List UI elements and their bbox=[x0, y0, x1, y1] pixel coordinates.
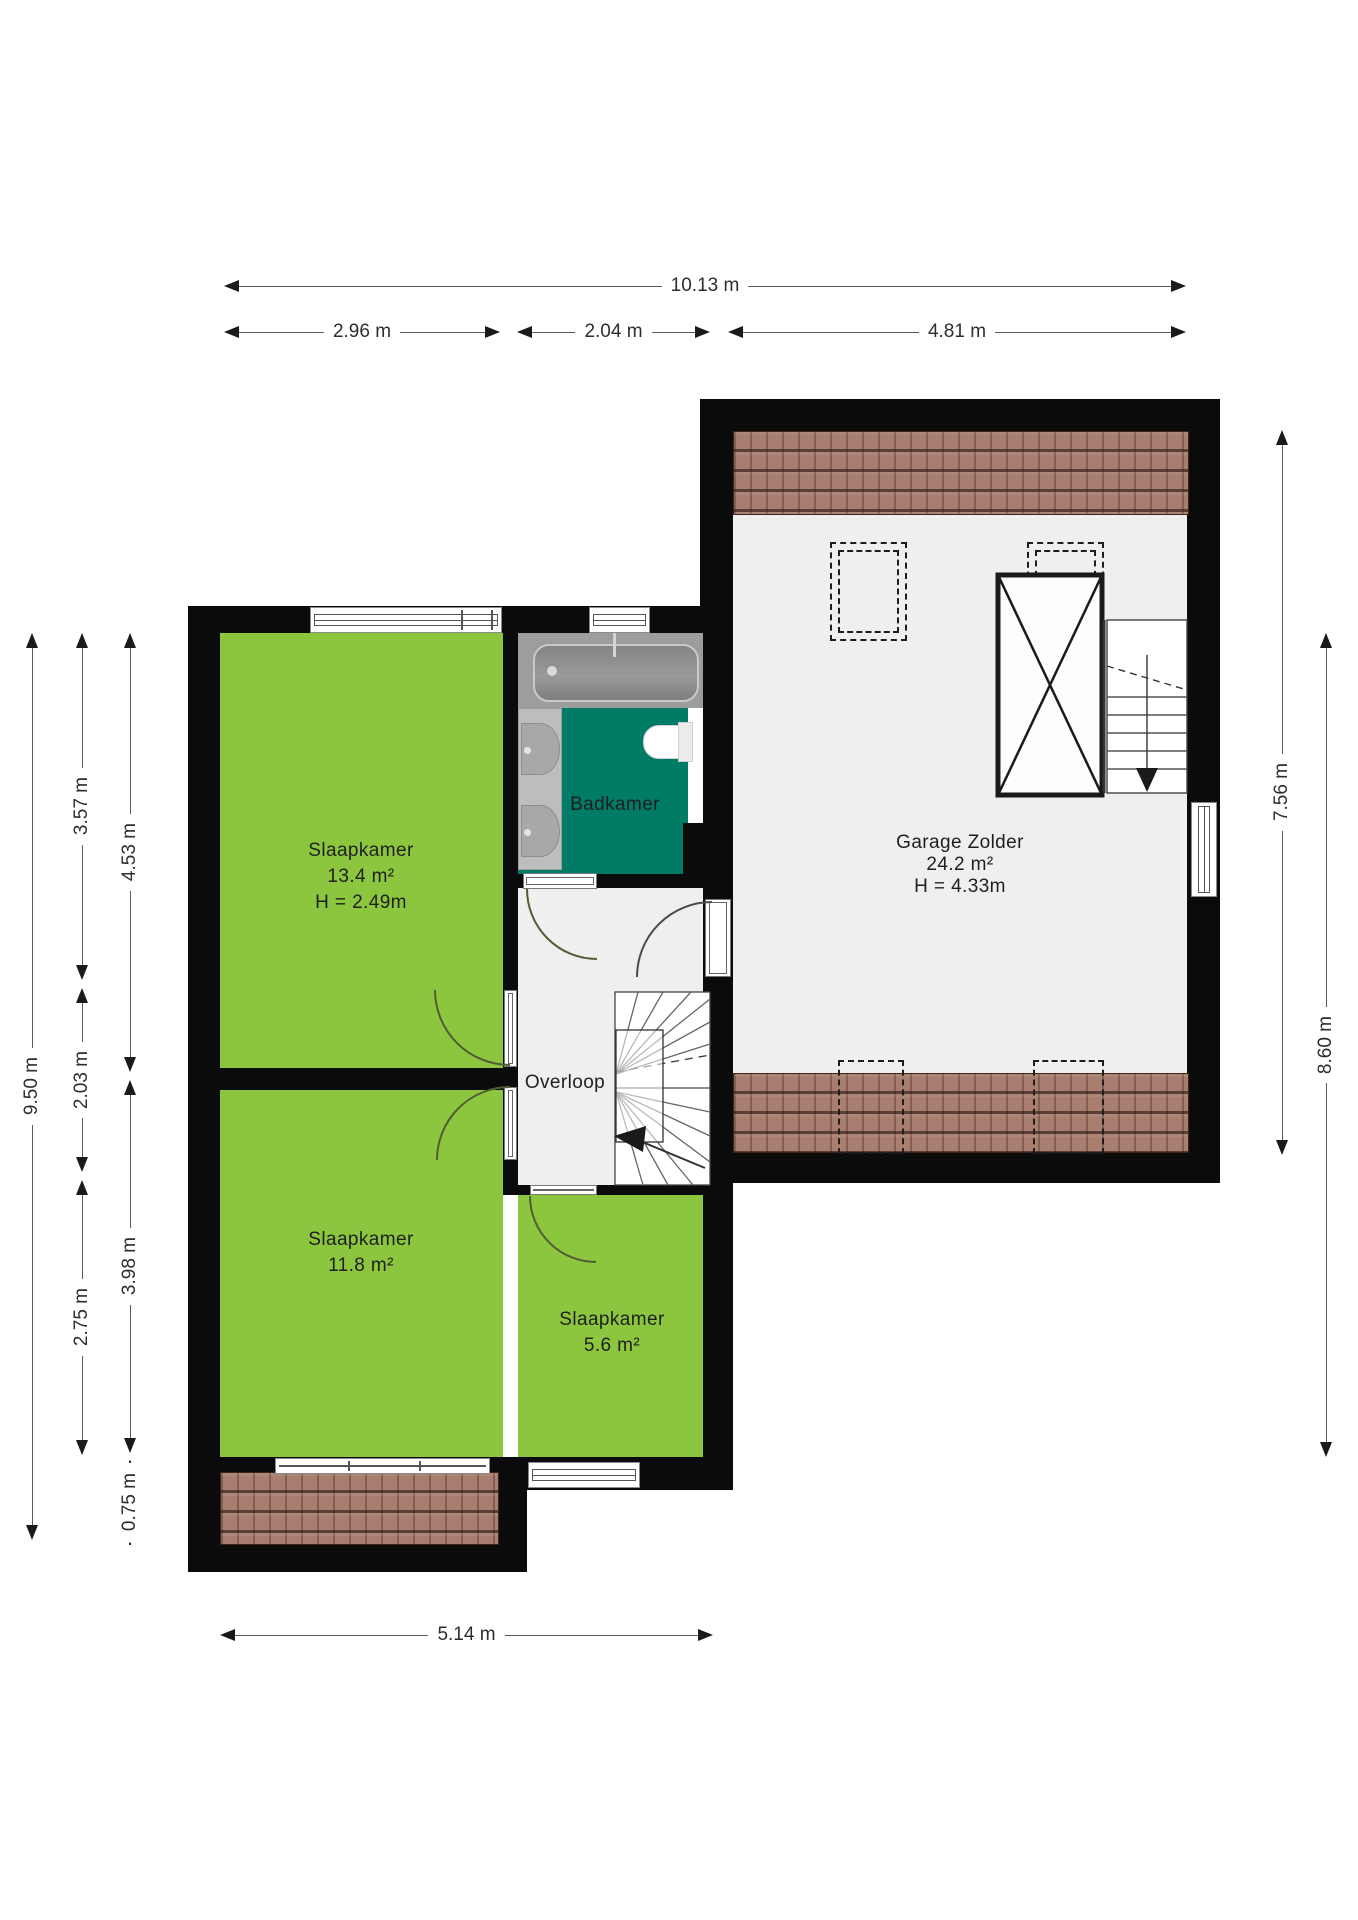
dim-label: 8.60 m bbox=[1315, 1016, 1337, 1074]
label-slaapkamer-2: Slaapkamer 11.8 m² bbox=[308, 1227, 413, 1279]
label-slaapkamer-3: Slaapkamer 5.6 m² bbox=[559, 1307, 664, 1359]
label-badkamer: Badkamer bbox=[570, 792, 660, 818]
arrow-up-icon bbox=[124, 1080, 136, 1095]
dim-top-seg-2: 2.04 m bbox=[517, 322, 710, 342]
dim-left3-seg-2: 3.98 m bbox=[119, 1080, 141, 1453]
room-height: H = 2.49m bbox=[308, 890, 413, 916]
label-garage-zolder: Garage Zolder 24.2 m² H = 4.33m bbox=[896, 832, 1024, 898]
arrow-left-icon bbox=[517, 326, 532, 338]
dim-label: 5.14 m bbox=[437, 1624, 495, 1646]
room-area: 11.8 m² bbox=[308, 1253, 413, 1279]
arrow-down-icon bbox=[1276, 1140, 1288, 1155]
arrow-right-icon bbox=[485, 326, 500, 338]
label-slaapkamer-1: Slaapkamer 13.4 m² H = 2.49m bbox=[308, 838, 413, 916]
dim-label: 4.81 m bbox=[928, 321, 986, 343]
dim-right-total: 8.60 m bbox=[1315, 633, 1337, 1457]
arrow-left-icon bbox=[224, 280, 239, 292]
garage-void-box bbox=[998, 575, 1102, 795]
dim-dot: · bbox=[126, 1540, 133, 1546]
room-name: Slaapkamer bbox=[308, 1227, 413, 1253]
dim-left3-seg-3: · 0.75 m · bbox=[119, 1458, 141, 1538]
dim-label: 3.98 m bbox=[119, 1237, 141, 1295]
dim-left2-seg-3: 2.75 m bbox=[71, 1180, 93, 1455]
arrow-right-icon bbox=[1171, 280, 1186, 292]
arrow-up-icon bbox=[1276, 430, 1288, 445]
dim-bottom: 5.14 m bbox=[220, 1625, 713, 1645]
label-overloop: Overloop bbox=[525, 1070, 605, 1096]
arrow-down-icon bbox=[26, 1525, 38, 1540]
arrow-left-icon bbox=[220, 1629, 235, 1641]
dim-right-garage: 7.56 m bbox=[1271, 430, 1293, 1155]
dim-left-total: 9.50 m bbox=[21, 633, 43, 1540]
dim-label: 3.57 m bbox=[71, 777, 93, 835]
room-name: Slaapkamer bbox=[559, 1307, 664, 1333]
arrow-up-icon bbox=[76, 1180, 88, 1195]
arrow-up-icon bbox=[1320, 633, 1332, 648]
room-height: H = 4.33m bbox=[896, 876, 1024, 898]
arrow-right-icon bbox=[695, 326, 710, 338]
dim-label: 7.56 m bbox=[1271, 763, 1293, 821]
arrow-down-icon bbox=[1320, 1442, 1332, 1457]
arrow-up-icon bbox=[124, 633, 136, 648]
dim-label: 2.75 m bbox=[71, 1288, 93, 1346]
arrow-right-icon bbox=[698, 1629, 713, 1641]
dim-top-seg-3: 4.81 m bbox=[728, 322, 1186, 342]
garage-stairs bbox=[1104, 620, 1187, 793]
overloop-stairs bbox=[614, 992, 710, 1185]
arrow-down-icon bbox=[76, 1157, 88, 1172]
room-area: 24.2 m² bbox=[896, 854, 1024, 876]
dim-label: 4.53 m bbox=[119, 823, 141, 881]
dim-left2-seg-2: 2.03 m bbox=[71, 988, 93, 1172]
arrow-down-icon bbox=[76, 965, 88, 980]
arrow-down-icon bbox=[124, 1057, 136, 1072]
dim-label: 0.75 m bbox=[119, 1473, 141, 1531]
dim-label: 2.03 m bbox=[71, 1051, 93, 1109]
dim-label: 10.13 m bbox=[671, 275, 740, 297]
room-name: Overloop bbox=[525, 1070, 605, 1096]
dim-dot: · bbox=[126, 1458, 133, 1464]
dim-left2-seg-1: 3.57 m bbox=[71, 633, 93, 980]
dim-left3-seg-1: 4.53 m bbox=[119, 633, 141, 1072]
arrow-up-icon bbox=[26, 633, 38, 648]
arrow-left-icon bbox=[224, 326, 239, 338]
floor-plan: Slaapkamer 13.4 m² H = 2.49m Badkamer Ov… bbox=[0, 0, 1358, 1920]
dim-top-total: 10.13 m bbox=[224, 276, 1186, 296]
room-name: Garage Zolder bbox=[896, 832, 1024, 854]
arrow-up-icon bbox=[76, 988, 88, 1003]
dim-label: 2.96 m bbox=[333, 321, 391, 343]
dim-label: 9.50 m bbox=[21, 1057, 43, 1115]
room-name: Slaapkamer bbox=[308, 838, 413, 864]
arrow-right-icon bbox=[1171, 326, 1186, 338]
room-area: 5.6 m² bbox=[559, 1333, 664, 1359]
arrow-down-icon bbox=[76, 1440, 88, 1455]
arrow-left-icon bbox=[728, 326, 743, 338]
arrow-up-icon bbox=[76, 633, 88, 648]
dim-label: 2.04 m bbox=[584, 321, 642, 343]
room-name: Badkamer bbox=[570, 792, 660, 818]
room-area: 13.4 m² bbox=[308, 864, 413, 890]
dim-top-seg-1: 2.96 m bbox=[224, 322, 500, 342]
